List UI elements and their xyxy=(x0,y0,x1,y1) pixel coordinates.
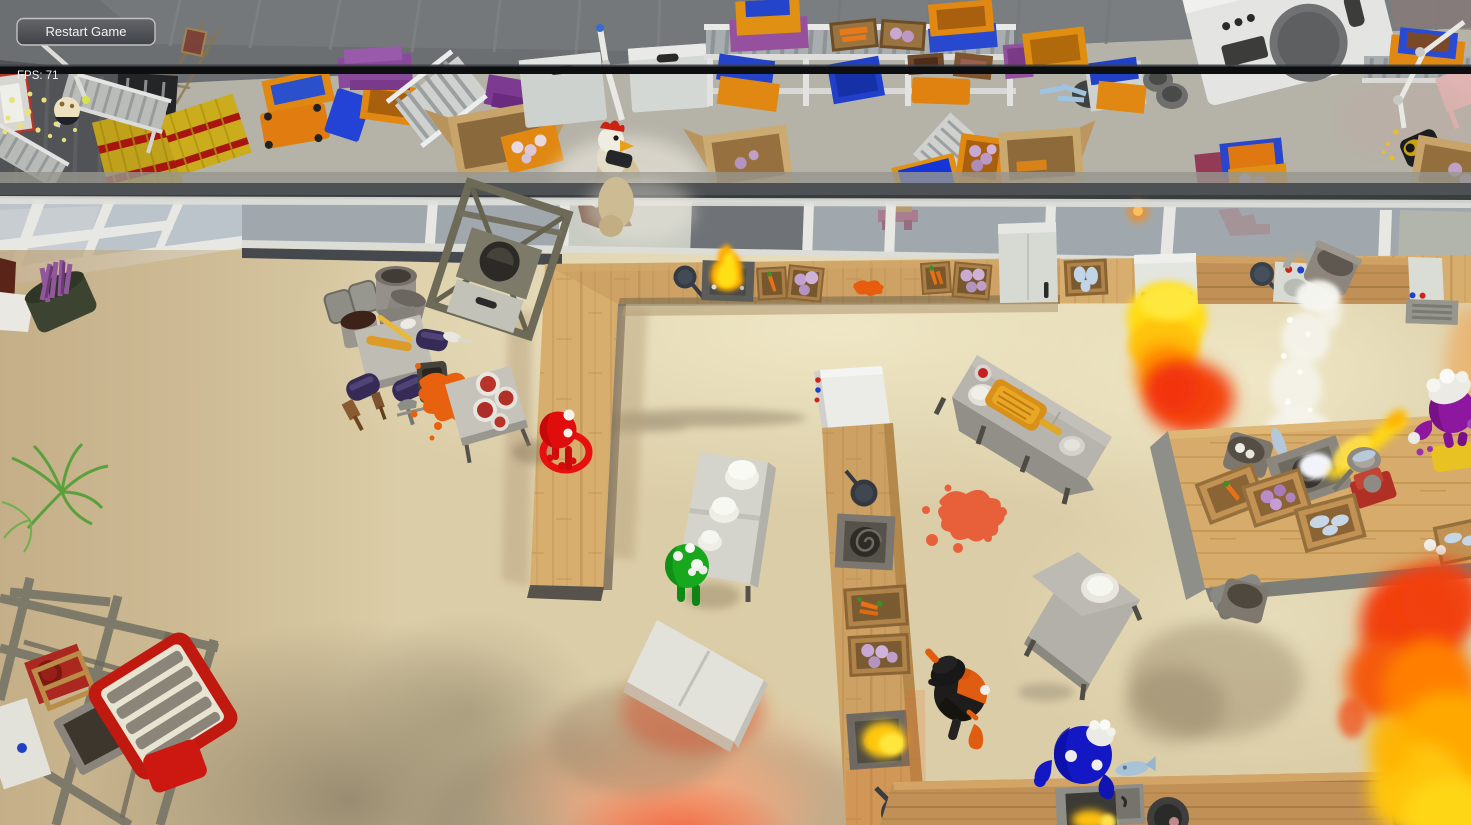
svg-text:FPS: 71: FPS: 71 xyxy=(17,70,59,82)
svg-text:Restart Game: Restart Game xyxy=(46,24,127,39)
